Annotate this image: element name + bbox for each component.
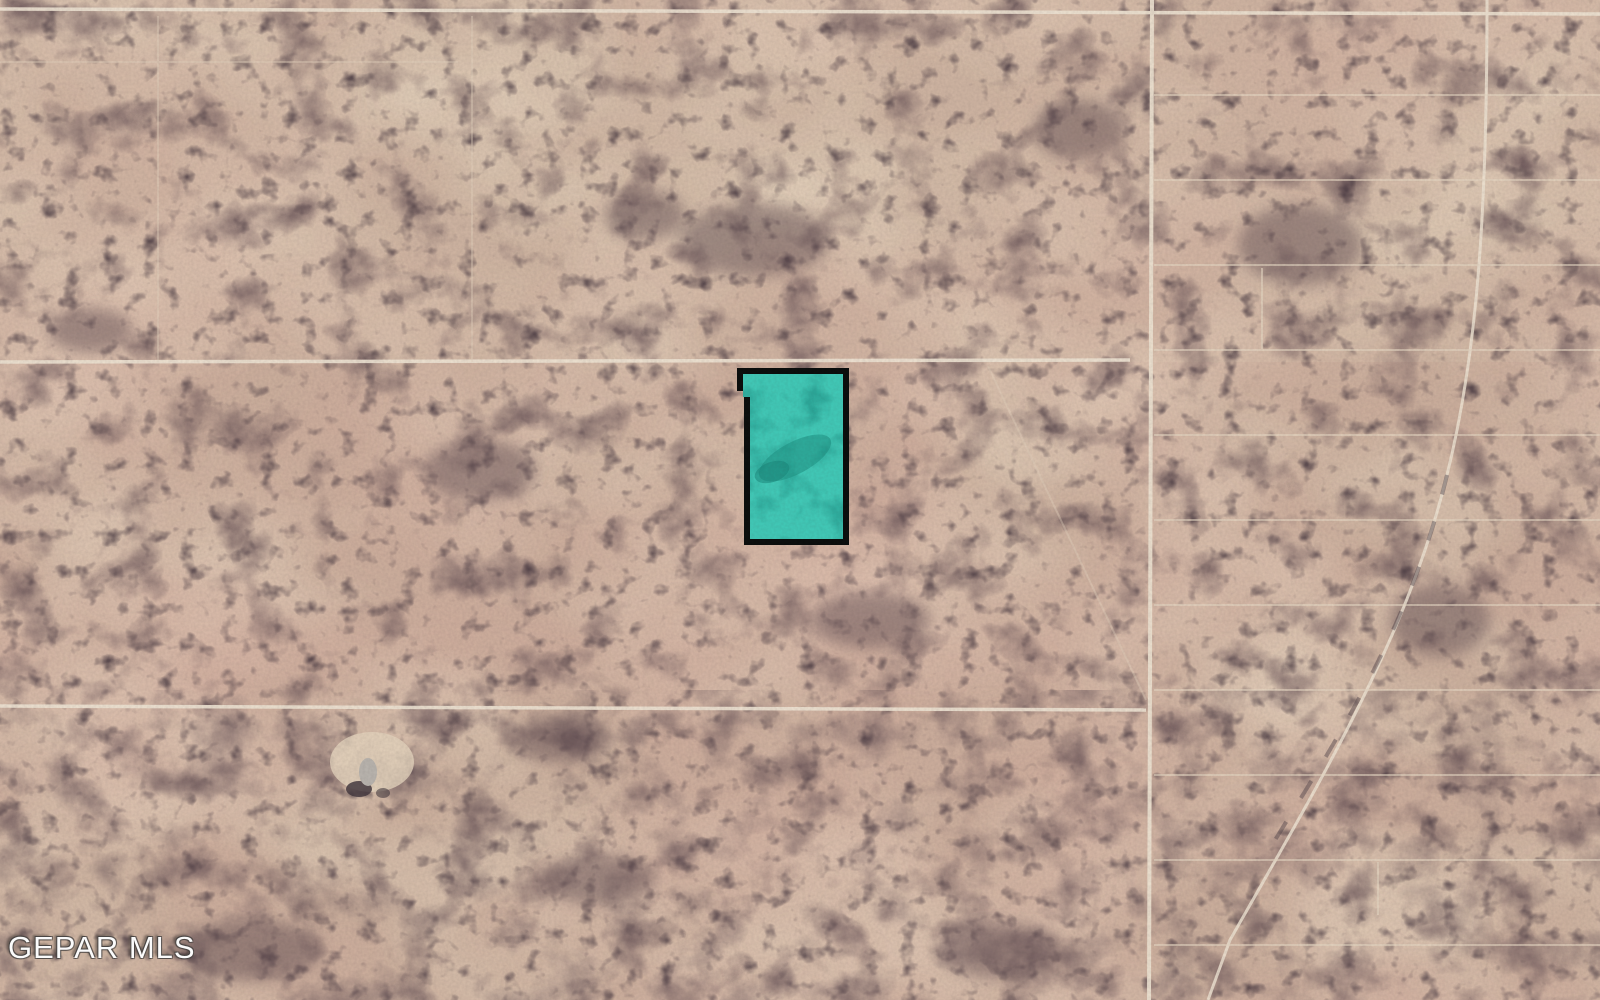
- mls-listing-photo: GEPAR MLS: [0, 0, 1600, 1000]
- satellite-map-image: [0, 0, 1600, 1000]
- photo-grain: [0, 0, 1600, 1000]
